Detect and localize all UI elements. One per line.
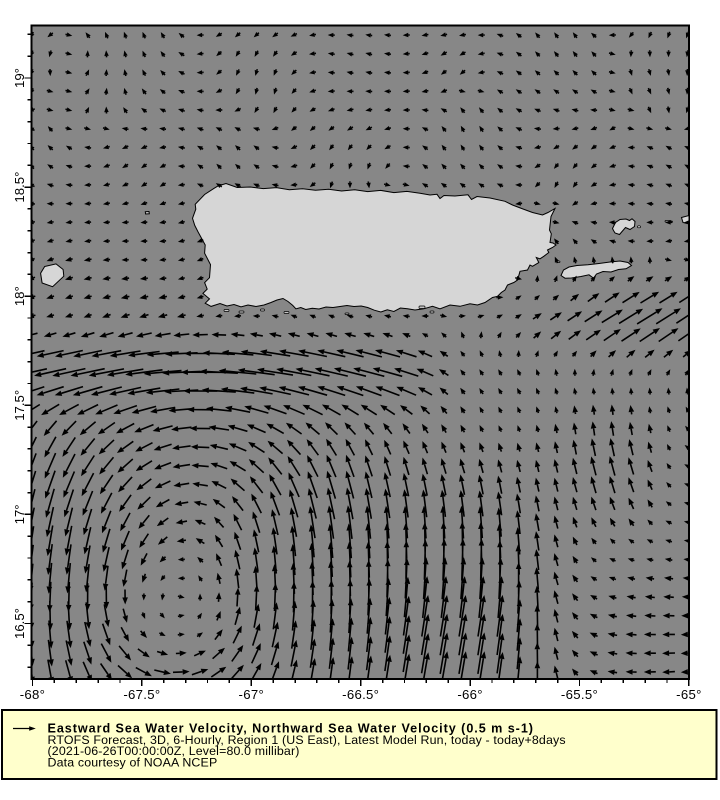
svg-text:-66°: -66° [457,687,483,702]
svg-text:-65°: -65° [676,687,702,702]
svg-text:-67°: -67° [239,687,265,702]
svg-text:17.5°: 17.5° [12,390,27,421]
svg-text:Data courtesy of NOAA NCEP: Data courtesy of NOAA NCEP [48,755,218,769]
svg-text:-68°: -68° [20,687,46,702]
svg-text:18.5°: 18.5° [12,172,27,203]
svg-text:16.5°: 16.5° [12,608,27,639]
svg-text:-67.5°: -67.5° [123,687,160,702]
svg-text:-65.5°: -65.5° [561,687,598,702]
svg-text:-66.5°: -66.5° [342,687,379,702]
svg-text:18°: 18° [12,286,27,306]
svg-text:19°: 19° [12,68,27,88]
svg-text:17°: 17° [12,504,27,524]
